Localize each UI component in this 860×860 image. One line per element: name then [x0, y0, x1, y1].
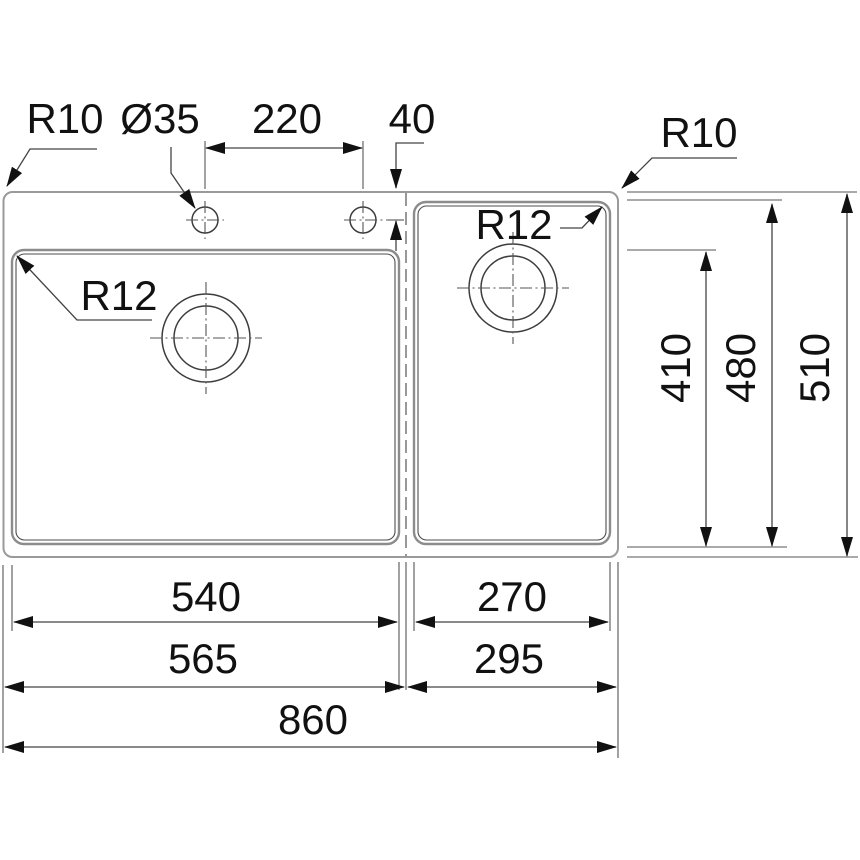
label-tap-offset: 40 — [389, 95, 436, 142]
label-right-bowl-width: 270 — [477, 573, 547, 620]
label-tap-diameter: Ø35 — [120, 95, 199, 142]
dimension-lines — [5, 143, 847, 747]
label-left-section-width: 565 — [168, 635, 238, 682]
label-overall-depth: 510 — [791, 333, 838, 403]
label-right-section-width: 295 — [474, 635, 544, 682]
leader-r12-right — [560, 207, 602, 228]
extension-lines — [3, 141, 858, 758]
label-corner-radius-right: R10 — [660, 109, 737, 156]
label-right-bowl-radius: R12 — [475, 201, 552, 248]
tap-hole-left — [186, 201, 224, 239]
drawing-canvas: R10 Ø35 220 40 R10 R12 R12 410 480 510 5… — [0, 0, 860, 860]
label-right-bowl-depth: 480 — [717, 333, 764, 403]
right-drain — [457, 232, 569, 344]
dim-line-40-upper — [396, 143, 424, 188]
sink-technical-drawing: R10 Ø35 220 40 R10 R12 R12 410 480 510 5… — [0, 0, 860, 860]
label-corner-radius-left: R10 — [26, 95, 103, 142]
label-left-bowl-radius: R12 — [80, 272, 157, 319]
leader-tap-diameter — [171, 147, 195, 208]
left-drain — [150, 282, 262, 394]
right-bowl-outline — [414, 202, 610, 544]
leader-r10-left — [7, 149, 97, 186]
label-left-bowl-depth: 410 — [652, 333, 699, 403]
leader-r10-right — [622, 158, 737, 188]
label-tap-spacing: 220 — [252, 95, 322, 142]
label-left-bowl-width: 540 — [171, 573, 241, 620]
label-overall-width: 860 — [278, 696, 348, 743]
